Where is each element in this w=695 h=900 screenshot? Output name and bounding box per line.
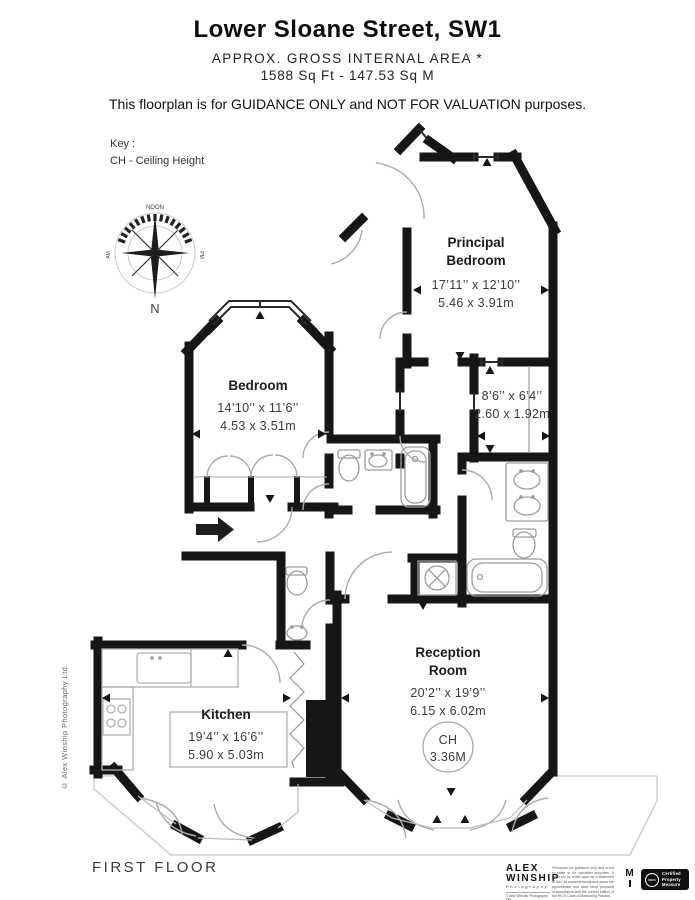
compass-rose: NOON N AM PM <box>106 205 204 316</box>
hob-icon <box>103 699 130 735</box>
room-name: Kitchen <box>201 707 251 722</box>
room-label-principal-bedroom: Principal Bedroom 17’11’’ x 12’10’’ 5.46… <box>432 235 521 310</box>
room-label-reception: Reception Room 20’2’’ x 19’9’’ 6.15 x 6.… <box>410 645 486 772</box>
rics-line3: Measure <box>662 882 681 887</box>
room-dim-imperial: 19’4’’ x 16’6’’ <box>188 730 263 744</box>
rics-badge-text: Certified Property Measure <box>662 871 681 887</box>
kitchen-sink <box>137 653 191 683</box>
ensuite-toilet-icon <box>513 529 536 558</box>
room-label-dressing: 8’6’’ x 6’4’’ 2.60 x 1.92m <box>474 389 550 421</box>
room-name: Bedroom <box>228 378 287 393</box>
toilet-icon <box>338 450 360 481</box>
room-dim-metric: 6.15 x 6.02m <box>410 704 486 718</box>
room-name: Bedroom <box>446 253 505 268</box>
bifold-doors <box>290 652 304 768</box>
disclaimer-text: *Floorplan for guidance only and is not … <box>552 866 614 899</box>
m-mark-letter: M <box>623 869 636 879</box>
terrace-outline <box>94 776 657 855</box>
area-value: 1588 Sq Ft - 147.53 Sq M <box>0 68 695 83</box>
room-dim-imperial: 20’2’’ x 19’9’’ <box>410 686 485 700</box>
side-copyright: © Alex Winship Photography Ltd. <box>60 612 69 790</box>
room-dim-metric: 5.46 x 3.91m <box>438 296 514 310</box>
compass-pm-label: PM <box>198 251 204 259</box>
guidance-note: This floorplan is for GUIDANCE ONLY and … <box>0 96 695 112</box>
floorplan-svg: NOON N AM PM Principal Bedroom 17’11’’ x… <box>0 0 695 900</box>
brand-line3: Photography <box>506 886 550 890</box>
ch-label: CH <box>439 733 458 747</box>
floorplan-page: Lower Sloane Street, SW1 APPROX. GROSS I… <box>0 0 695 900</box>
m-mark-stem <box>629 880 631 887</box>
brand-line4: © Alex Winship Photography Ltd <box>506 892 550 900</box>
compass-am-label: AM <box>106 251 112 259</box>
ensuite-bathtub-icon <box>467 559 547 596</box>
rics-line1: Certified <box>662 871 681 876</box>
room-dim-metric: 2.60 x 1.92m <box>474 407 550 421</box>
room-label-kitchen: Kitchen 19’4’’ x 16’6’’ 5.90 x 5.03m <box>188 707 264 762</box>
bathtub-icon <box>401 447 430 507</box>
wall-block <box>306 700 336 777</box>
wc-toilet-icon <box>286 567 307 595</box>
double-sink-icon <box>506 463 548 521</box>
room-dim-imperial: 8’6’’ x 6’4’’ <box>482 389 543 403</box>
compass-n-label: N <box>150 301 159 316</box>
rics-logo-icon: RICS <box>645 873 659 887</box>
brand-line2: WINSHIP <box>506 874 550 884</box>
room-dim-metric: 4.53 x 3.51m <box>220 419 296 433</box>
shower-icon <box>418 561 456 595</box>
room-dim-imperial: 17’11’’ x 12’10’’ <box>432 278 521 292</box>
key-title: Key : <box>110 136 204 153</box>
page-title: Lower Sloane Street, SW1 <box>0 16 695 44</box>
entry-arrow-icon <box>196 517 234 542</box>
room-dim-metric: 5.90 x 5.03m <box>188 748 264 762</box>
room-name: Reception <box>415 645 480 660</box>
ceiling-height-badge: CH 3.36M <box>423 722 473 772</box>
m-mark-icon: M <box>623 869 636 887</box>
ch-value: 3.36M <box>430 750 466 764</box>
sink-icon <box>365 450 392 470</box>
room-label-bedroom: Bedroom 14’10’’ x 11’6’’ 4.53 x 3.51m <box>217 378 298 433</box>
rics-badge: RICS Certified Property Measure <box>641 869 689 890</box>
floor-label: FIRST FLOOR <box>92 859 218 876</box>
key-block: Key : CH - Ceiling Height <box>110 136 204 169</box>
wc-basin-icon <box>287 626 307 640</box>
key-ceiling-height: CH - Ceiling Height <box>110 153 204 170</box>
room-name: Principal <box>447 235 504 250</box>
compass-noon-label: NOON <box>146 205 164 211</box>
room-dim-imperial: 14’10’’ x 11’6’’ <box>217 401 298 415</box>
room-name: Room <box>429 663 467 678</box>
approx-area-label: APPROX. GROSS INTERNAL AREA * <box>0 51 695 66</box>
brand-logo: ALEX WINSHIP Photography © Alex Winship … <box>506 864 550 900</box>
